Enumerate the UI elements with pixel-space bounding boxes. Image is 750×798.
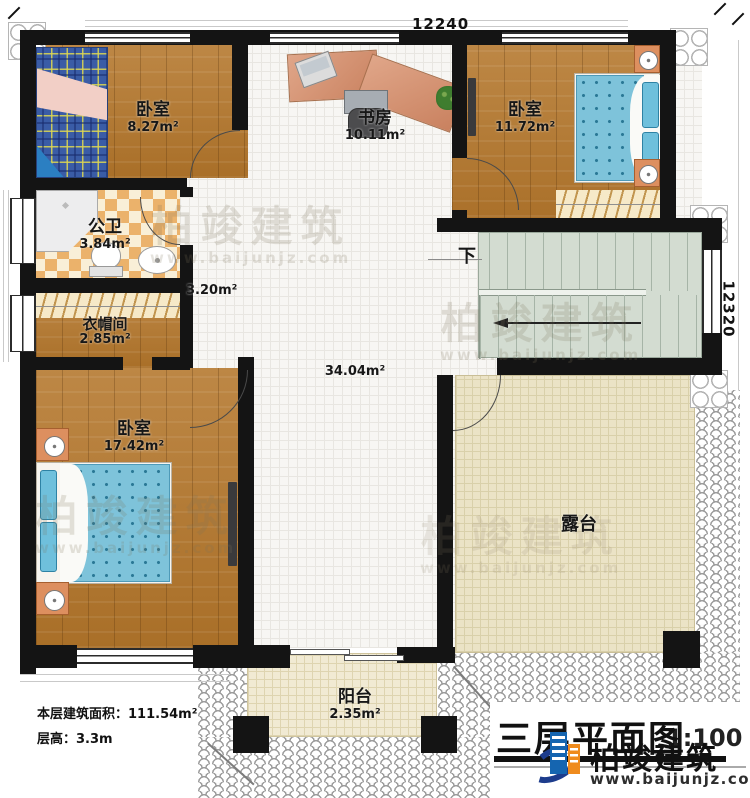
dim-tick-top-right-b <box>732 13 745 26</box>
dim-width-value: 12240 <box>412 15 469 33</box>
bed-plaid <box>36 47 108 178</box>
window-top-bedroom2 <box>502 32 628 44</box>
sill-line-left-a <box>3 190 4 362</box>
wall-bedroom1-right <box>232 45 248 130</box>
ac-unit-right-lower <box>690 370 728 408</box>
lamp <box>639 165 658 184</box>
room-name: 阳台 <box>305 688 405 708</box>
toilet-tank <box>89 266 123 277</box>
label-terrace: 露台 <box>529 515 629 536</box>
sill-line-bottom-a <box>20 674 230 675</box>
wall-bedroom3-top-b <box>152 357 190 370</box>
label-balcony: 阳台 2.35m² <box>305 688 405 722</box>
pillow <box>642 82 659 128</box>
dim-depth-value: 12320 <box>720 280 738 337</box>
floor-area-text: 本层建筑面积：111.54m² <box>37 707 197 722</box>
wall-bedroom3-right <box>238 357 254 648</box>
label-corridor: 3.20m² <box>186 284 246 299</box>
wall-terrace-top <box>497 358 722 375</box>
room-name: 书房 <box>325 109 425 129</box>
room-area: 3.20m² <box>186 284 246 299</box>
room-area: 3.84m² <box>55 238 155 253</box>
pillow <box>40 522 57 572</box>
sill-line-top-b <box>85 26 628 27</box>
wall-bottom-b <box>193 645 290 668</box>
tv-bedroom-bottom-left <box>228 482 237 566</box>
column-balcony-left <box>233 716 269 753</box>
label-study: 书房 10.11m² <box>325 109 425 143</box>
wall-bedroom3-top-a <box>20 357 123 370</box>
staircase <box>478 232 702 358</box>
lamp <box>44 590 65 611</box>
nightstand <box>634 159 660 187</box>
company-logo: 柏竣建筑 www.baijunjz.com <box>528 724 750 794</box>
window-bottom-bedroom3 <box>77 648 193 664</box>
sliding-door-balcony-a <box>290 649 350 655</box>
room-area: 10.11m² <box>325 129 425 144</box>
window-left-closet <box>10 295 36 352</box>
wall-bottom-a <box>20 645 77 668</box>
sill-line-left-b <box>8 190 9 362</box>
stairs-down-label: 下 <box>452 247 482 268</box>
wardrobe-top-right <box>556 190 660 218</box>
dim-tick-top-right-a <box>714 3 727 16</box>
logo-url: www.baijunjz.com <box>590 770 750 788</box>
lamp <box>639 51 658 70</box>
window-top-study <box>270 32 399 44</box>
sill-line-top-a <box>85 20 628 21</box>
logo-mark-icon <box>528 726 588 792</box>
room-name: 公卫 <box>55 218 155 238</box>
laptop-screen <box>300 56 330 77</box>
label-closet: 衣帽间 2.85m² <box>55 316 155 348</box>
room-area: 34.04m² <box>305 365 405 380</box>
nightstand <box>36 582 69 615</box>
nightstand <box>36 428 69 461</box>
room-name: 卧室 <box>470 101 580 121</box>
stairs-down-text: 下 <box>458 246 476 267</box>
wall-bedroom1-bottom <box>20 178 187 190</box>
label-bedroom-top-right: 卧室 11.72m² <box>470 101 580 135</box>
nightstand <box>634 45 660 73</box>
room-area: 11.72m² <box>470 121 580 136</box>
wall-stairwell-right-upper <box>702 218 722 250</box>
floor-area-stat: 本层建筑面积：111.54m² <box>37 703 197 722</box>
wall-stairwell-top <box>437 218 722 232</box>
floor-height-text: 层高：3.3m <box>37 732 113 747</box>
dim-extension-right <box>738 40 739 390</box>
room-area: 8.27m² <box>103 121 203 136</box>
stairs-lower-flight <box>479 295 703 359</box>
bed-blanket <box>37 48 107 177</box>
bed-bottom-left-sheet <box>60 464 88 582</box>
room-name: 露台 <box>529 515 629 536</box>
stairs-direction-arrowhead <box>493 318 508 328</box>
wall-bathroom-closet-divider <box>20 278 180 293</box>
wardrobe-rail <box>556 204 660 205</box>
floor-plan: 下 12240 12320 柏竣建筑 <box>0 0 750 798</box>
dim-tick-top-left <box>8 7 21 20</box>
sill-line-bottom-b <box>20 681 230 682</box>
label-bedroom-bottom-left: 卧室 17.42m² <box>84 420 184 454</box>
column-terrace-corner <box>663 631 700 668</box>
window-left-bathroom <box>10 198 36 264</box>
wall-bedroom2-right <box>660 30 676 218</box>
room-area: 2.85m² <box>55 333 155 348</box>
stairs-upper-flight <box>489 233 703 291</box>
label-bathroom: 公卫 3.84m² <box>55 218 155 252</box>
stairs-direction-line <box>506 322 641 324</box>
room-area: 2.35m² <box>305 708 405 723</box>
room-name: 衣帽间 <box>55 316 155 333</box>
room-area: 17.42m² <box>84 440 184 455</box>
room-name: 卧室 <box>84 420 184 440</box>
label-hall: 34.04m² <box>305 365 405 380</box>
wall-terrace-left <box>437 375 453 663</box>
wall-left <box>20 30 36 675</box>
wardrobe-rail <box>36 306 180 307</box>
sliding-door-balcony-b <box>344 655 404 661</box>
room-name: 卧室 <box>103 101 203 121</box>
label-bedroom-top-left: 卧室 8.27m² <box>103 101 203 135</box>
shower-drain <box>62 202 69 209</box>
sink-drain <box>155 258 160 263</box>
pillow <box>40 470 57 520</box>
lamp <box>44 436 65 457</box>
wall-bedroom2-left-upper <box>452 45 467 158</box>
dim-depth-label: 12320 <box>720 280 738 337</box>
column-balcony-right <box>421 716 457 753</box>
wall-bathroom-right-upper <box>180 187 193 197</box>
dim-width-label: 12240 <box>412 15 469 33</box>
window-top-bedroom1 <box>85 32 190 44</box>
floor-height-stat: 层高：3.3m <box>37 728 113 747</box>
roof-right-strip <box>695 390 740 653</box>
